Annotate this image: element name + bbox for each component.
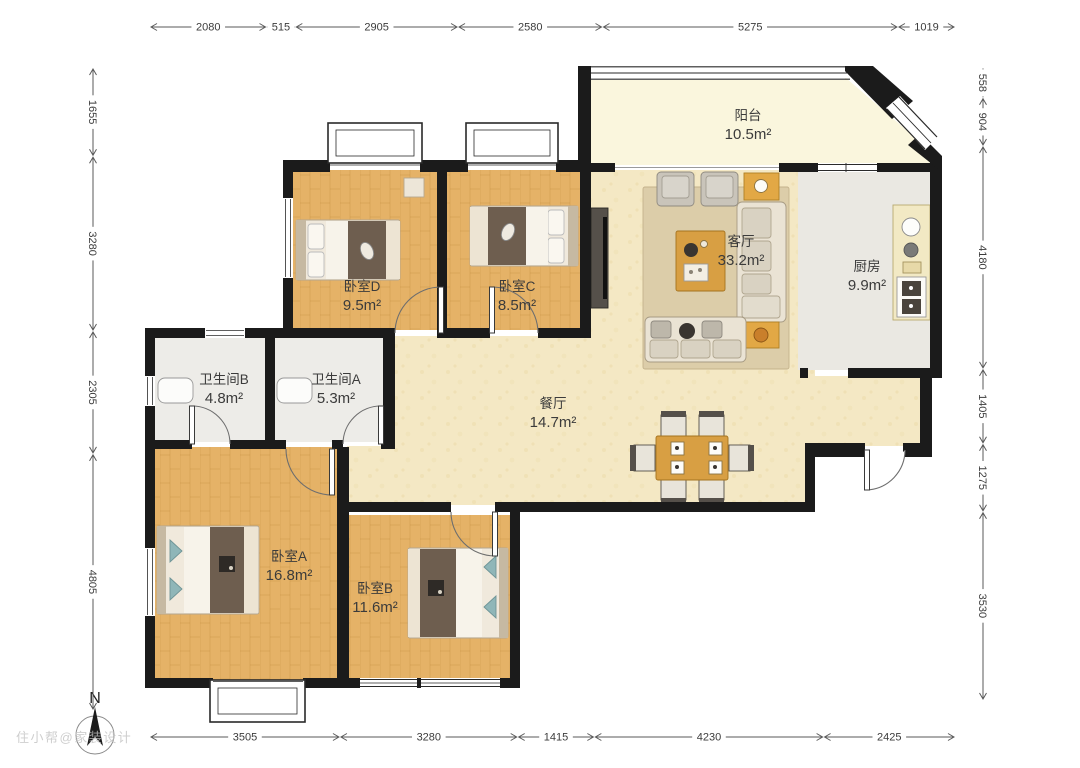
room-name: 卧室A xyxy=(266,548,313,566)
room-label-bedroom-c: 卧室C 8.5m² xyxy=(498,278,536,316)
room-area: 5.3m² xyxy=(311,389,361,409)
side-table xyxy=(744,173,779,200)
dimension-value: 1415 xyxy=(544,732,568,744)
kitchen-counter xyxy=(893,205,930,320)
room-label-balcony: 阳台 10.5m² xyxy=(725,107,772,145)
bath-b-side-window xyxy=(145,376,155,406)
room-label-bath-a: 卫生间A 5.3m² xyxy=(311,371,361,409)
dimension-value: 1655 xyxy=(86,100,98,124)
dimension-value: 5275 xyxy=(738,22,762,34)
dimension-value: 558 xyxy=(976,74,988,92)
room-area: 33.2m² xyxy=(718,251,765,271)
tv-cabinet xyxy=(591,208,608,308)
room-label-dining: 餐厅 14.7m² xyxy=(530,395,577,433)
dimension-value: 2905 xyxy=(364,22,388,34)
bedroom-d-side-window xyxy=(283,198,293,278)
dimension-value: 1019 xyxy=(914,22,938,34)
foyer-floor xyxy=(800,376,922,446)
floor-plan-canvas: N 20805152905258052751019350532801415423… xyxy=(0,0,1080,768)
room-area: 10.5m² xyxy=(725,125,772,145)
bedroom-b-window xyxy=(360,678,500,688)
room-label-kitchen: 厨房 9.9m² xyxy=(848,258,886,296)
bay-window-bedroom-c xyxy=(466,123,558,165)
bath-a-vanity xyxy=(277,378,312,403)
dimension-value: 2080 xyxy=(196,22,220,34)
kitchen-sink xyxy=(902,218,920,236)
room-name: 卫生间A xyxy=(311,371,361,389)
room-area: 9.5m² xyxy=(343,296,381,316)
bed-b xyxy=(408,548,508,638)
dimension-value: 515 xyxy=(272,22,290,34)
bed-a xyxy=(157,526,259,614)
bedroom-a-side-window xyxy=(145,548,155,616)
room-label-bedroom-b: 卧室B 11.6m² xyxy=(352,580,398,618)
dimension-line-right: 5589044180140512753530 xyxy=(976,69,989,699)
balcony-window xyxy=(591,66,850,80)
room-name: 客厅 xyxy=(718,233,765,251)
room-area: 4.8m² xyxy=(199,389,249,409)
dimension-value: 3280 xyxy=(417,732,441,744)
dimension-line-top: 20805152905258052751019 xyxy=(151,21,954,34)
dimension-value: 4230 xyxy=(697,732,721,744)
armchair xyxy=(701,172,738,206)
room-name: 卧室D xyxy=(343,278,381,296)
room-name: 卧室B xyxy=(352,580,398,598)
bay-window-bedroom-d xyxy=(328,123,422,165)
dimension-value: 2305 xyxy=(86,380,98,404)
bath-b-vanity xyxy=(158,378,193,403)
dimension-value: 4180 xyxy=(976,245,988,269)
entry-door xyxy=(865,450,906,490)
room-label-bedroom-d: 卧室D 9.5m² xyxy=(343,278,381,316)
dimension-value: 904 xyxy=(976,113,988,131)
hall-floor xyxy=(347,446,395,506)
room-area: 11.6m² xyxy=(352,598,398,618)
room-name: 阳台 xyxy=(725,107,772,125)
dimension-value: 1275 xyxy=(976,466,988,490)
room-name: 卫生间B xyxy=(199,371,249,389)
bay-window-bedroom-a xyxy=(210,680,305,722)
bath-b-top-window xyxy=(205,328,245,338)
room-area: 14.7m² xyxy=(530,413,577,433)
room-area: 9.9m² xyxy=(848,276,886,296)
dimension-value: 3530 xyxy=(976,594,988,618)
dimension-line-bottom: 35053280141542302425 xyxy=(151,731,954,744)
bed-c xyxy=(470,206,578,266)
side-table xyxy=(744,322,779,348)
room-name: 厨房 xyxy=(848,258,886,276)
dimension-value: 3505 xyxy=(233,732,257,744)
dimension-value: 2580 xyxy=(518,22,542,34)
compass-label: N xyxy=(89,690,101,707)
room-name: 餐厅 xyxy=(530,395,577,413)
sofa-bottom xyxy=(645,317,746,362)
room-label-living: 客厅 33.2m² xyxy=(718,233,765,271)
kitchen-balcony-window xyxy=(818,163,877,172)
dimension-line-left: 1655328023054805 xyxy=(86,69,99,709)
watermark: 住小帮@家装设计 xyxy=(16,727,132,746)
dimension-value: 1405 xyxy=(976,394,988,418)
room-area: 8.5m² xyxy=(498,296,536,316)
room-name: 卧室C xyxy=(498,278,536,296)
dimension-value: 4805 xyxy=(86,570,98,594)
room-label-bath-b: 卫生间B 4.8m² xyxy=(199,371,249,409)
dimension-value: 3280 xyxy=(86,231,98,255)
room-area: 16.8m² xyxy=(266,566,313,586)
dimension-value: 2425 xyxy=(877,732,901,744)
armchair xyxy=(657,172,694,206)
room-label-bedroom-a: 卧室A 16.8m² xyxy=(266,548,313,586)
floor-plan-drawing: N 20805152905258052751019350532801415423… xyxy=(0,0,1080,768)
